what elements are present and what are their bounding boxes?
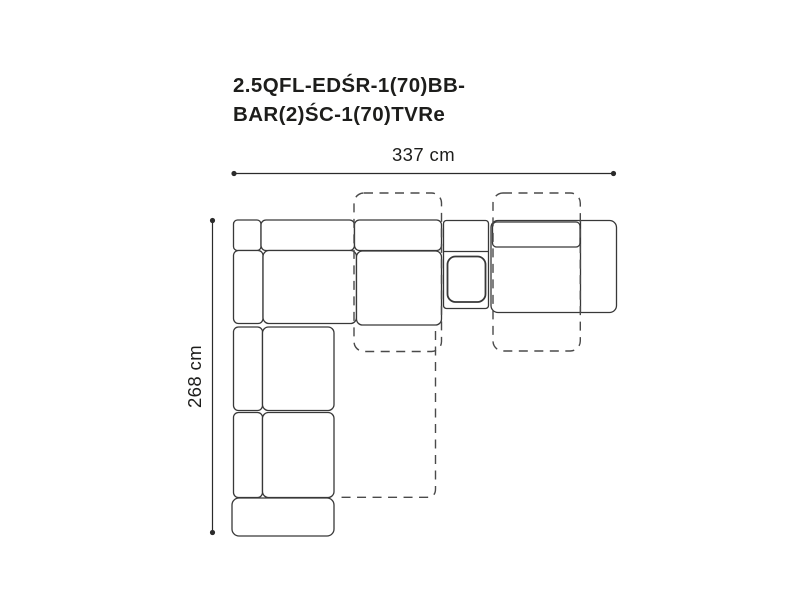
top-backrest-left xyxy=(261,220,355,251)
depth-dim-dot-bottom xyxy=(210,530,215,535)
depth-dim-dot-top xyxy=(210,218,215,223)
sofa-layout-diagram xyxy=(0,0,800,600)
width-dim-dot-left xyxy=(231,171,236,176)
bed-extension-qfl-dashed xyxy=(337,331,436,497)
seat-bb xyxy=(357,251,442,325)
seat2-backrest xyxy=(234,327,263,411)
furniture-diagram-page: 2.5QFL-EDŚR-1(70)BB- BAR(2)ŚC-1(70)TVRe … xyxy=(0,0,800,600)
width-dim-dot-right xyxy=(611,171,616,176)
right-module-backrest xyxy=(493,222,581,247)
corner-seat xyxy=(263,251,357,324)
bar-tray xyxy=(448,257,486,303)
corner-left-backrest xyxy=(234,251,264,324)
sofa-solid-outline xyxy=(232,220,617,536)
seat3-backrest xyxy=(234,413,263,498)
front-armrest xyxy=(232,498,334,536)
seat2 xyxy=(263,327,335,411)
corner-back-cushion xyxy=(234,220,262,251)
seat-bb-backrest xyxy=(355,220,442,251)
seat3 xyxy=(263,413,335,498)
